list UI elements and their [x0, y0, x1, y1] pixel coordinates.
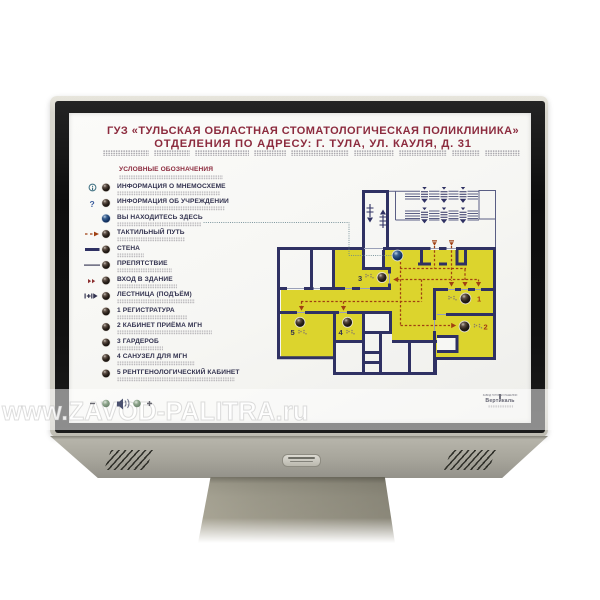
svg-text:5: 5 — [291, 328, 295, 337]
svg-text:2: 2 — [484, 323, 488, 332]
svg-text:?: ? — [90, 199, 95, 209]
svg-text:3: 3 — [358, 274, 362, 283]
svg-text:1: 1 — [477, 295, 481, 304]
